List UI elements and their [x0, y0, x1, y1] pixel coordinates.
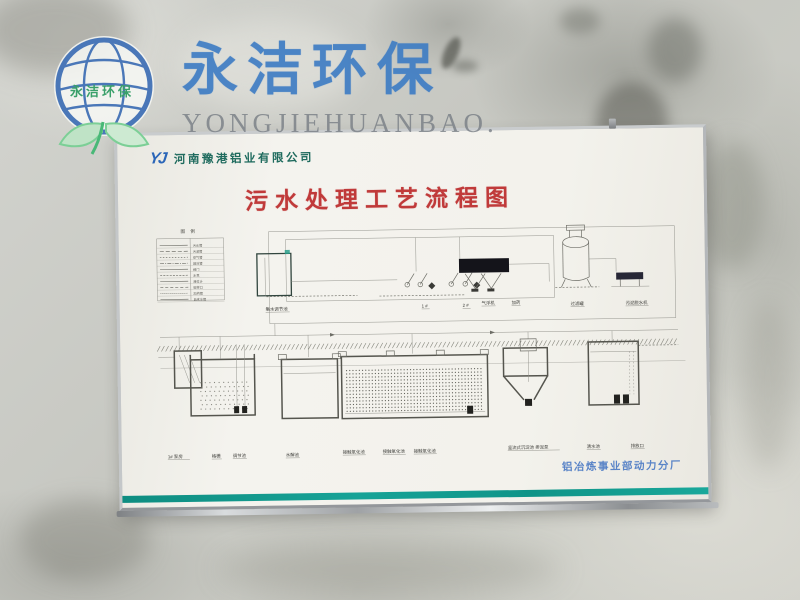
flotation-machine — [459, 258, 549, 292]
lower-section: 1# 泵房 格栅 调节池 水解池 接触氧化池 接触氧化池 接触氧化池 竖流式沉淀… — [166, 337, 645, 460]
clean-water-tank — [588, 341, 639, 405]
filter-vessel — [554, 225, 616, 288]
leaf-icon — [60, 123, 102, 146]
svg-text:气浮机: 气浮机 — [482, 299, 496, 306]
svg-text:过滤罐: 过滤罐 — [571, 300, 585, 307]
wall-stain — [0, 0, 130, 75]
svg-text:污泥管: 污泥管 — [193, 249, 203, 254]
wall-stain — [648, 18, 702, 82]
wall-stain — [220, 545, 560, 593]
legend-title: 图 例 — [180, 228, 197, 235]
svg-text:水解池: 水解池 — [286, 451, 300, 458]
company-name: 河南豫港铝业有限公司 — [174, 149, 314, 167]
wall-stain — [452, 60, 478, 72]
process-flow-diagram: 图 例 污水管污泥管空气管回流管阀门水泵液位计取样口加药管自来水管 — [128, 217, 698, 475]
oxidation-tank — [338, 349, 489, 418]
pump-group-1 — [404, 237, 435, 289]
upper-flow-section: 集水调节池 1 # 2 # 气浮机 加药 过滤罐 污泥脱水机 — [256, 224, 675, 324]
regulating-tank — [278, 354, 341, 419]
svg-text:2 #: 2 # — [463, 303, 470, 308]
svg-text:1# 泵房: 1# 泵房 — [168, 453, 184, 460]
svg-text:清水池: 清水池 — [587, 443, 601, 450]
stem-icon — [92, 122, 103, 154]
company-header: YJ 河南豫港铝业有限公司 — [149, 148, 314, 168]
poster-footer: 铝冶炼事业部动力分厂 — [562, 458, 682, 475]
wall-stain — [744, 300, 792, 470]
wall-stain — [560, 8, 600, 34]
hydrolysis-tank — [190, 344, 255, 416]
frame-clip — [609, 119, 616, 129]
legend-table: 图 例 污水管污泥管空气管回流管阀门水泵液位计取样口加药管自来水管 — [156, 227, 224, 302]
company-logo-mark: YJ — [148, 150, 166, 168]
svg-text:加药: 加药 — [512, 299, 521, 306]
svg-text:加药管: 加药管 — [193, 291, 203, 296]
svg-text:取样口: 取样口 — [193, 285, 203, 290]
lower-labels: 1# 泵房 格栅 调节池 水解池 接触氧化池 接触氧化池 接触氧化池 竖流式沉淀… — [168, 442, 645, 460]
svg-text:空气管: 空气管 — [193, 255, 203, 260]
svg-text:水泵: 水泵 — [193, 273, 200, 278]
svg-text:污水管: 污水管 — [193, 243, 203, 248]
wall-stain — [700, 140, 764, 270]
svg-text:接触氧化池: 接触氧化池 — [383, 448, 406, 455]
svg-text:阀门: 阀门 — [193, 267, 199, 272]
poster-frame-bottom — [117, 502, 719, 517]
svg-text:接触氧化池: 接触氧化池 — [343, 448, 366, 455]
screen-chamber — [174, 351, 202, 388]
frame-screw — [116, 135, 121, 140]
clarifier — [503, 339, 548, 407]
wall-highlight — [180, 20, 360, 110]
svg-text:液位计: 液位计 — [193, 279, 203, 284]
tank-marker — [285, 250, 290, 254]
svg-text:调节池: 调节池 — [233, 452, 247, 459]
upper-labels: 集水调节池 1 # 2 # 气浮机 加药 过滤罐 污泥脱水机 — [266, 297, 649, 313]
poster-title: 污水处理工艺流程图 — [118, 176, 642, 218]
svg-text:回流管: 回流管 — [193, 261, 203, 266]
svg-text:集水调节池: 集水调节池 — [266, 305, 289, 312]
svg-text:污泥脱水机: 污泥脱水机 — [626, 299, 649, 306]
pipe-connections — [157, 318, 686, 369]
svg-text:自来水管: 自来水管 — [193, 297, 206, 302]
globe-logo-text: 永洁环保 — [69, 84, 134, 99]
process-flow-poster: YJ 河南豫港铝业有限公司 污水处理工艺流程图 图 例 污水管污泥管空气管回流管… — [114, 124, 712, 511]
svg-text:1 #: 1 # — [422, 303, 429, 308]
svg-text:格栅: 格栅 — [212, 452, 221, 459]
poster-teal-stripe — [122, 487, 708, 503]
dewatering-machine — [611, 272, 649, 287]
photo-scene: { "watermark": { "brand_cn": "永洁环保", "br… — [0, 0, 800, 600]
svg-text:排放口: 排放口 — [631, 442, 644, 449]
svg-text:接触氧化池: 接触氧化池 — [414, 447, 437, 454]
